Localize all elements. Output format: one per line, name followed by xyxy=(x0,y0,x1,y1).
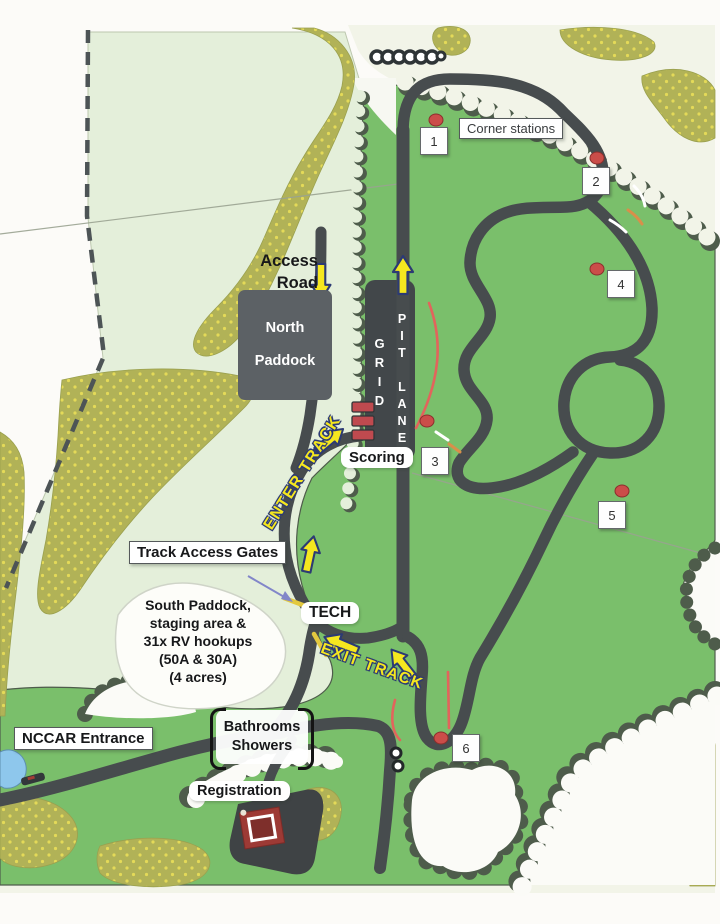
corner-station-4: 4 xyxy=(607,270,635,298)
south-paddock-label: South Paddock, staging area & 31x RV hoo… xyxy=(118,597,278,687)
left-bracket-icon xyxy=(210,708,226,770)
grid-label: GRID xyxy=(372,336,387,412)
access-road-label: Access Road xyxy=(248,250,318,295)
pit-lane-label: PIT LANE xyxy=(395,312,409,448)
grid-slot-markers xyxy=(352,402,374,440)
corner-station-1: 1 xyxy=(420,127,448,155)
bathrooms-showers-label: Bathrooms Showers xyxy=(214,708,310,766)
corner-station-5: 5 xyxy=(598,501,626,529)
start-gate-circles xyxy=(371,51,445,63)
nccar-entrance-label: NCCAR Entrance xyxy=(14,727,153,750)
nccar-track-map: Access Road North Paddock GRID PIT LANE … xyxy=(0,0,720,924)
corner-station-3: 3 xyxy=(421,447,449,475)
corner-station-2: 2 xyxy=(582,167,610,195)
corner-station-dot xyxy=(420,415,435,428)
corner-station-dot xyxy=(615,485,630,498)
registration-label: Registration xyxy=(189,781,290,801)
corner-station-dot xyxy=(590,152,605,165)
corner-station-6: 6 xyxy=(452,734,480,762)
corner-stations-legend: Corner stations xyxy=(459,118,563,139)
corner-station-dot xyxy=(429,114,444,127)
tech-label: TECH xyxy=(301,602,359,624)
corner-station-dot xyxy=(434,732,449,745)
corner-station-dot xyxy=(590,263,605,276)
right-bracket-icon xyxy=(298,708,314,770)
north-paddock-label: North Paddock xyxy=(238,290,332,400)
scoring-label: Scoring xyxy=(341,447,413,468)
track-access-gates-label: Track Access Gates xyxy=(129,541,286,564)
